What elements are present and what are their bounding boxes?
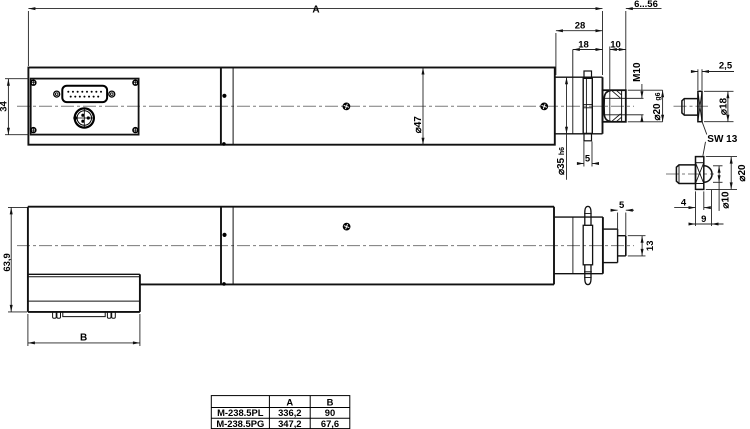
svg-text:90: 90 xyxy=(325,407,335,418)
svg-text:A: A xyxy=(312,5,319,16)
svg-text:⌀20: ⌀20 xyxy=(737,164,748,182)
svg-text:M-238.5PG: M-238.5PG xyxy=(216,418,264,429)
svg-text:⌀18: ⌀18 xyxy=(718,97,729,115)
svg-text:M-238.5PL: M-238.5PL xyxy=(217,407,264,418)
svg-text:5: 5 xyxy=(619,200,625,211)
svg-text:B: B xyxy=(327,396,334,407)
svg-text:4: 4 xyxy=(681,197,687,208)
svg-text:5: 5 xyxy=(585,153,591,164)
svg-text:⌀10: ⌀10 xyxy=(721,191,732,209)
svg-text:63,9: 63,9 xyxy=(2,253,13,272)
svg-text:M10: M10 xyxy=(632,62,643,82)
svg-text:9: 9 xyxy=(701,214,706,225)
svg-text:67,6: 67,6 xyxy=(321,418,339,429)
svg-text:2,5: 2,5 xyxy=(719,61,733,72)
svg-text:⌀47: ⌀47 xyxy=(413,116,424,134)
svg-text:28: 28 xyxy=(575,21,586,32)
svg-text:B: B xyxy=(80,333,87,344)
svg-text:SW 13: SW 13 xyxy=(707,134,737,145)
svg-text:336,2: 336,2 xyxy=(278,407,301,418)
svg-text:34: 34 xyxy=(0,101,9,112)
svg-text:A: A xyxy=(286,396,293,407)
svg-text:6...56: 6...56 xyxy=(634,0,658,10)
svg-text:18: 18 xyxy=(578,39,589,50)
svg-text:347,2: 347,2 xyxy=(278,418,301,429)
svg-text:13: 13 xyxy=(645,241,656,252)
svg-text:10: 10 xyxy=(610,39,621,50)
